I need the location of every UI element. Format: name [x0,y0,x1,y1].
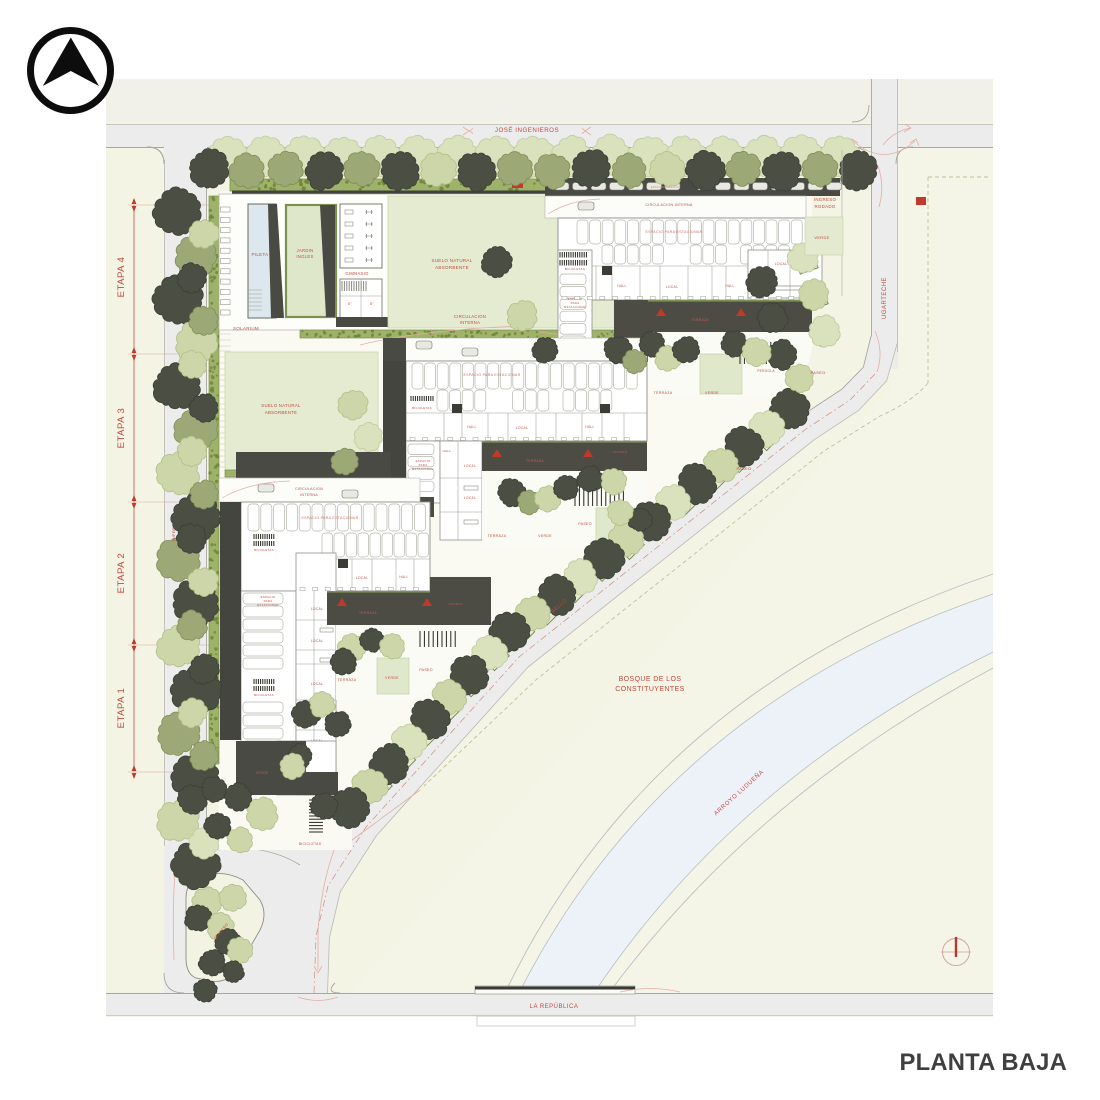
svg-text:ESTACIONAR: ESTACIONAR [257,603,279,607]
svg-text:ACCESO: ACCESO [449,602,464,606]
svg-text:SUPERI: SUPERI [172,526,176,541]
svg-text:VERDE: VERDE [538,534,552,538]
svg-text:TERRAZA: TERRAZA [691,318,709,322]
svg-text:8°: 8° [348,302,352,306]
svg-text:PLANTA BAJA: PLANTA BAJA [900,1049,1067,1076]
svg-text:JARDIN: JARDIN [297,248,314,253]
svg-text:TERRAZA: TERRAZA [359,611,377,615]
svg-text:BICICLETAS: BICICLETAS [254,548,274,552]
svg-text:VERDE: VERDE [256,771,268,775]
svg-text:LOCAL: LOCAL [464,496,477,500]
svg-text:LOCAL: LOCAL [666,285,679,289]
svg-text:PASEO: PASEO [578,522,592,526]
svg-text:TERRAZA: TERRAZA [338,678,357,682]
svg-text:HALL: HALL [585,425,594,429]
svg-text:ESTACIONAR: ESTACIONAR [564,305,586,309]
svg-text:8°: 8° [370,302,374,306]
svg-text:ABSORBENTE: ABSORBENTE [435,265,469,270]
svg-text:RODADO: RODADO [814,204,835,209]
svg-text:GIMNASIO: GIMNASIO [345,271,369,276]
svg-text:PASEO: PASEO [737,466,752,471]
svg-text:INGRESO: INGRESO [814,197,837,202]
svg-text:BICICLETAS: BICICLETAS [565,267,585,271]
svg-text:VERDE: VERDE [705,391,719,395]
svg-text:HALL: HALL [467,425,476,429]
svg-text:ABSORBENTE: ABSORBENTE [265,410,297,415]
svg-text:PASEO: PASEO [811,370,826,375]
svg-text:LOCAL: LOCAL [775,262,788,266]
svg-text:CIRCULACION: CIRCULACION [454,314,486,319]
svg-text:LA REPÚBLICA: LA REPÚBLICA [530,1003,579,1010]
svg-text:INTERNA: INTERNA [460,320,480,325]
svg-text:HALL: HALL [443,449,452,453]
svg-text:ESPACIO PARA ESTACIONAR: ESPACIO PARA ESTACIONAR [301,516,358,520]
svg-text:ETAPA 4: ETAPA 4 [116,257,127,298]
svg-text:LOCAL: LOCAL [311,639,324,643]
svg-text:CIRCULACION INTERNA: CIRCULACION INTERNA [645,203,693,207]
svg-text:PERGOLA: PERGOLA [757,369,775,373]
svg-text:HALL: HALL [617,284,626,288]
svg-text:TERRAZA: TERRAZA [488,534,507,538]
svg-text:LOCAL: LOCAL [516,426,529,430]
svg-text:INTERNA: INTERNA [300,493,318,497]
svg-text:BOSQUE DE LOS: BOSQUE DE LOS [619,676,682,683]
svg-text:SUELO NATURAL: SUELO NATURAL [431,258,472,263]
svg-text:VERDE: VERDE [814,235,829,240]
svg-text:UGARTECHE: UGARTECHE [882,277,888,319]
svg-text:SOLARIUM: SOLARIUM [233,326,259,331]
svg-text:JOSÉ INGENIEROS: JOSÉ INGENIEROS [495,127,559,134]
svg-text:PILETA: PILETA [252,252,269,257]
svg-text:ESPACIO PARA ESTACIONAR: ESPACIO PARA ESTACIONAR [645,230,702,234]
svg-text:ESPACIO PARA ESTACIONAR: ESPACIO PARA ESTACIONAR [463,373,520,377]
svg-text:LOCAL: LOCAL [356,576,369,580]
svg-text:BICICLETAS: BICICLETAS [299,842,322,846]
svg-text:ETAPA 2: ETAPA 2 [116,553,127,594]
svg-text:LOCAL: LOCAL [464,464,477,468]
svg-text:ETAPA 3: ETAPA 3 [116,408,127,449]
svg-text:LOCAL: LOCAL [311,607,324,611]
svg-text:BICICLETAS: BICICLETAS [254,693,274,697]
svg-text:HALL: HALL [399,575,408,579]
svg-text:TERRAZA: TERRAZA [526,459,544,463]
svg-text:ETAPA 1: ETAPA 1 [116,688,127,729]
svg-text:VERDE: VERDE [385,676,399,680]
svg-text:ESTACIONAR: ESTACIONAR [412,467,434,471]
svg-text:ACCESO: ACCESO [613,450,628,454]
svg-text:CIRCULACION: CIRCULACION [295,487,323,491]
svg-text:BICICLETAS: BICICLETAS [412,406,432,410]
svg-text:SUELO NATURAL: SUELO NATURAL [261,403,301,408]
svg-text:PASEO: PASEO [419,668,433,672]
svg-text:LOCAL: LOCAL [311,682,324,686]
svg-text:INGLES: INGLES [296,254,313,259]
svg-text:CONSTITUYENTES: CONSTITUYENTES [615,686,684,693]
svg-text:TERRAZA: TERRAZA [654,391,673,395]
svg-text:HALL: HALL [725,284,734,288]
